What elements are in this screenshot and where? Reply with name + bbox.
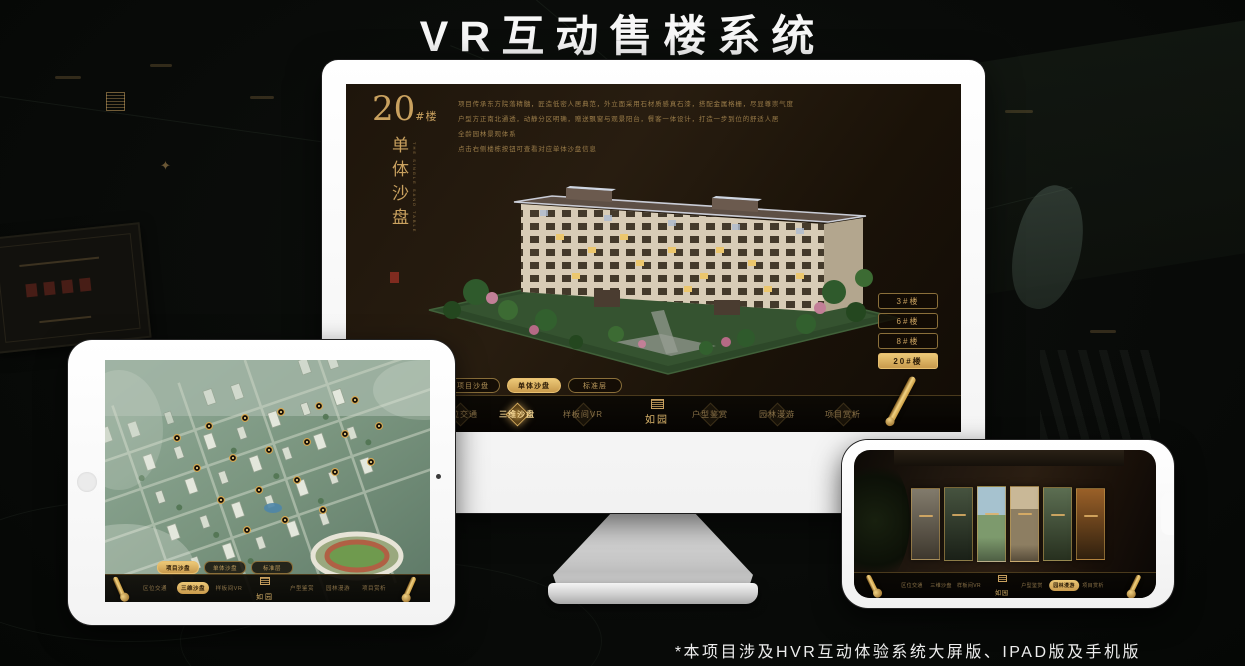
subtab-standard-floor[interactable]: 标准层 [568, 378, 622, 393]
nav-item-label: 项目赏析 [825, 409, 861, 420]
tablet-subtab-project-sandtable[interactable]: 项目沙盘 [157, 561, 199, 574]
tablet-subtab-single-sandtable[interactable]: 单体沙盘 [204, 561, 246, 574]
bg-compass-star-icon: ✦ [160, 158, 171, 174]
brand-logo: 如园 [645, 399, 669, 428]
vr-scene-panel[interactable] [944, 487, 973, 561]
vr-scene-panels [911, 486, 1105, 562]
panel-caption [952, 514, 966, 516]
brand-logo-text: 如园 [995, 590, 1009, 597]
floor-button-6[interactable]: 6#楼 [878, 313, 938, 329]
phone-notch [1161, 493, 1174, 535]
bg-map-label [1090, 330, 1116, 333]
seal-stamp-icon [390, 272, 399, 283]
tablet-nav-item-3d-sandtable[interactable]: 三维沙盘 [177, 582, 209, 594]
plaque-title-line [19, 257, 99, 267]
description-line: 全龄园林景观体系 [458, 128, 898, 143]
building-number: 20 [372, 89, 415, 129]
tablet-home-button[interactable] [77, 472, 97, 492]
bg-building-cluster [1040, 350, 1160, 440]
monitor-subtabs: 项目沙盘 单体沙盘 标准层 [446, 378, 622, 393]
tablet-brand-logo: 如园 [256, 577, 274, 602]
page-title: VR互动售楼系统 [0, 2, 1245, 64]
tablet-subtab-standard-floor[interactable]: 标准层 [251, 561, 293, 574]
subtab-single-sandtable[interactable]: 单体沙盘 [507, 378, 561, 393]
vr-scene-panel[interactable] [977, 486, 1006, 562]
phone-nav-item-garden-roam[interactable]: 园林漫游 [1049, 580, 1079, 591]
panel-caption [1051, 514, 1065, 516]
tablet-subtabs: 项目沙盘 单体沙盘 标准层 [157, 561, 293, 574]
description-line: 项目传承东方院落精髓，匠造低密人居典范，外立面采用石材质感真石漆，搭配金属格栅，… [458, 98, 898, 113]
vr-scene-panel[interactable] [1010, 486, 1039, 562]
tablet-camera-icon [436, 474, 441, 479]
floor-button-3[interactable]: 3#楼 [878, 293, 938, 309]
vr-scene-panel[interactable] [1076, 488, 1105, 560]
phone-nav-item-showroom-vr[interactable]: 样板间VR [957, 582, 981, 589]
bg-river-shape [1001, 179, 1095, 316]
nav-item-label: 三维沙盘 [499, 409, 535, 420]
bg-certificate-plaque [0, 222, 152, 354]
tablet-nav-item-floorplans[interactable]: 户型鉴赏 [290, 584, 314, 592]
phone-nav-item-floorplans[interactable]: 户型鉴赏 [1021, 582, 1043, 589]
tablet-nav-item-location[interactable]: 区位交通 [143, 584, 167, 592]
bg-map-label [150, 64, 172, 67]
brand-logo-icon [651, 399, 664, 409]
nav-item-label: 户型鉴赏 [692, 409, 728, 420]
floor-button-group: 3#楼 6#楼 8#楼 20#楼 [878, 293, 938, 369]
tablet-nav-item-showroom-vr[interactable]: 样板间VR [216, 584, 243, 592]
phone-screen: 区位交通 三维沙盘 样板间VR 如园 户型鉴赏 园林漫游 项目赏析 [854, 450, 1156, 598]
nav-item-label: 样板间VR [563, 409, 603, 420]
description-line: 户型方正南北通透，动静分区明确，赠送飘窗与观景阳台，餐客一体设计，打造一步到位的… [458, 113, 898, 128]
interior-ceiling-beam [894, 450, 1124, 466]
vr-scene-panel[interactable] [911, 488, 940, 560]
bg-map-logo-icon [106, 92, 125, 111]
bg-map-label [55, 76, 81, 79]
panel-caption [919, 515, 933, 517]
page-canvas: ✦ VR互动售楼系统 *本项目涉及HVR互动体验系统大屏版、IPAD版及手机版 … [0, 0, 1245, 666]
phone-nav-item-project-gallery[interactable]: 项目赏析 [1082, 582, 1104, 589]
tablet-frame: 项目沙盘 单体沙盘 标准层 区位交通 三维沙盘 样板间VR 如园 户型鉴赏 园林… [68, 340, 455, 625]
nav-item-project-gallery[interactable]: 项目赏析 [815, 401, 871, 427]
building-3d-model[interactable] [416, 142, 906, 386]
nav-item-floorplans[interactable]: 户型鉴赏 [682, 401, 738, 427]
phone-navbar: 区位交通 三维沙盘 样板间VR 如园 户型鉴赏 园林漫游 项目赏析 [854, 572, 1156, 598]
floor-button-20[interactable]: 20#楼 [878, 353, 938, 369]
tablet-nav-item-garden-roam[interactable]: 园林漫游 [326, 584, 350, 592]
plaque-seal-char [61, 280, 73, 294]
brand-logo-text: 如园 [645, 415, 669, 426]
panel-caption [985, 513, 999, 515]
monitor-stand [553, 511, 753, 587]
bg-map-label [250, 96, 274, 99]
plaque-seal-char [43, 281, 55, 295]
tablet-nav-item-project-gallery[interactable]: 项目赏析 [362, 584, 386, 592]
brand-logo-icon [260, 577, 270, 585]
section-title-vertical: 单体沙盘 [386, 136, 411, 232]
phone-nav-item-location[interactable]: 区位交通 [901, 582, 923, 589]
nav-item-garden-roam[interactable]: 园林漫游 [749, 401, 805, 427]
brand-logo-text: 如园 [256, 593, 274, 601]
phone-nav-item-3d-sandtable[interactable]: 三维沙盘 [930, 582, 952, 589]
bg-map-label [1005, 110, 1033, 113]
phone-frame: 区位交通 三维沙盘 样板间VR 如园 户型鉴赏 园林漫游 项目赏析 [842, 440, 1174, 608]
plaque-inner-border [0, 233, 141, 343]
tablet-navbar: 区位交通 三维沙盘 样板间VR 如园 户型鉴赏 园林漫游 项目赏析 [105, 574, 430, 602]
panel-caption [1084, 515, 1098, 517]
nav-item-showroom-vr[interactable]: 样板间VR [555, 401, 611, 427]
brand-logo-icon [997, 575, 1006, 582]
plaque-seal-char [25, 283, 37, 297]
nav-item-3d-sandtable[interactable]: 三维沙盘 [489, 401, 545, 427]
floor-button-8[interactable]: 8#楼 [878, 333, 938, 349]
panel-caption [1018, 513, 1032, 515]
vr-scene-panel[interactable] [1043, 487, 1072, 561]
monitor-base [548, 583, 758, 604]
nav-item-label: 园林漫游 [759, 409, 795, 420]
plaque-seal-char [79, 278, 91, 292]
building-number-suffix: #楼 [415, 110, 437, 123]
building-number-heading: 20#楼 [372, 92, 437, 126]
footnote-text: *本项目涉及HVR互动体验系统大屏版、IPAD版及手机版 [675, 638, 1141, 662]
phone-brand-logo: 如园 [995, 575, 1009, 598]
plaque-sub-line [39, 316, 91, 323]
interior-foliage-shadow [854, 456, 910, 586]
tablet-screen: 项目沙盘 单体沙盘 标准层 区位交通 三维沙盘 样板间VR 如园 户型鉴赏 园林… [105, 360, 430, 602]
